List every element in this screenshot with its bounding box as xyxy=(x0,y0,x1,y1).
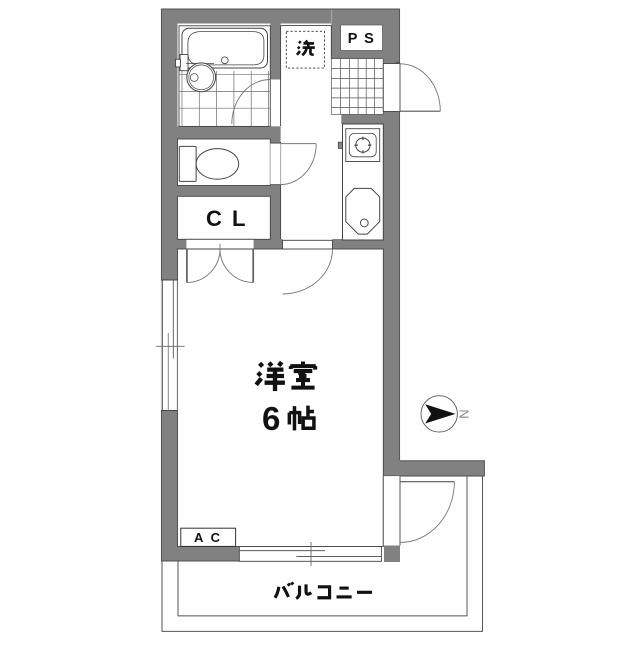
svg-text:C L: C L xyxy=(206,206,247,231)
svg-text:A C: A C xyxy=(194,530,222,545)
svg-text:P S: P S xyxy=(348,31,376,47)
svg-text:6: 6 xyxy=(262,400,280,437)
svg-text:N: N xyxy=(457,409,472,418)
